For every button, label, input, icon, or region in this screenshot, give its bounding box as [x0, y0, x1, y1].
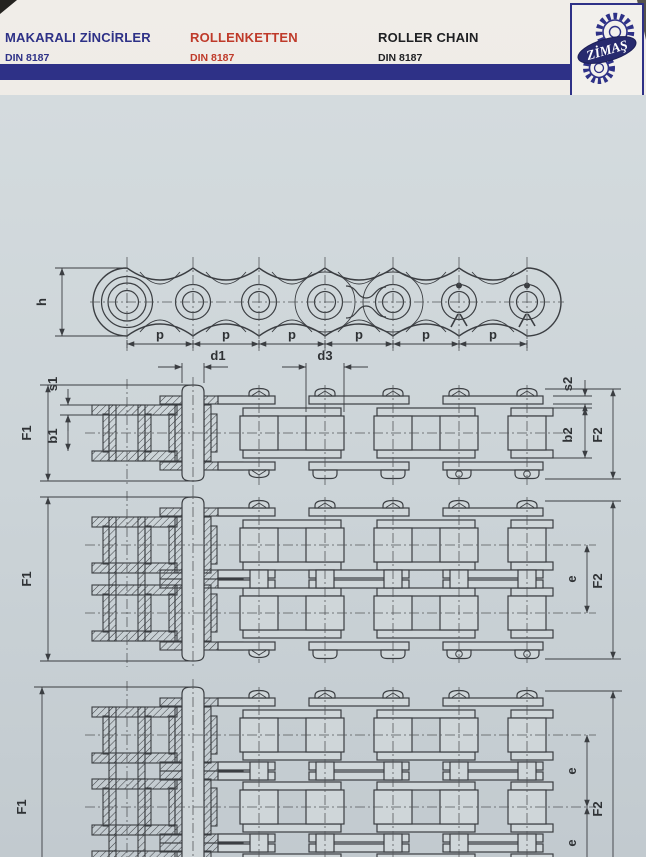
dim-label-f1-triplex: F1 — [14, 799, 29, 814]
title-english-text: ROLLER CHAIN — [378, 31, 479, 44]
dim-label-b2: b2 — [560, 427, 575, 442]
dim-label-e-duplex: e — [564, 575, 579, 582]
dim-label-p: p — [422, 327, 430, 342]
title-turkish: MAKARALI ZİNCİRLER DIN 8187 — [5, 31, 151, 64]
dim-label-p: p — [222, 327, 230, 342]
catalog-page: MAKARALI ZİNCİRLER DIN 8187 ROLLENKETTEN… — [0, 0, 646, 857]
dim-label-f2-duplex: F2 — [590, 573, 605, 588]
zimas-logo: ZİMAŞ — [570, 3, 644, 97]
title-turkish-text: MAKARALI ZİNCİRLER — [5, 31, 151, 44]
title-english: ROLLER CHAIN DIN 8187 — [378, 31, 479, 64]
dim-label-p: p — [288, 327, 296, 342]
dim-label-e2-triplex: e — [564, 839, 579, 846]
title-german-din: DIN 8187 — [190, 53, 298, 64]
dim-label-h: h — [34, 298, 49, 306]
dim-label-d1: d1 — [210, 348, 225, 363]
dim-label-b1: b1 — [45, 428, 60, 443]
dim-label-p: p — [489, 327, 497, 342]
dim-label-f1-simplex: F1 — [19, 425, 34, 440]
dim-label-f2-simplex: F2 — [590, 427, 605, 442]
dim-label-p: p — [355, 327, 363, 342]
dim-label-f1-duplex: F1 — [19, 571, 34, 586]
dim-label-d3: d3 — [317, 348, 332, 363]
title-english-din: DIN 8187 — [378, 53, 479, 64]
dim-label-e1-triplex: e — [564, 767, 579, 774]
page-header: MAKARALI ZİNCİRLER DIN 8187 ROLLENKETTEN… — [0, 0, 646, 95]
header-rule-bar — [0, 64, 572, 80]
zimas-logo-art: ZİMAŞ — [572, 5, 642, 95]
chain-drawing: .ln{fill:none;stroke:#3b3e42;stroke-widt… — [0, 95, 646, 857]
dim-label-p: p — [156, 327, 164, 342]
dim-label-f2-triplex: F2 — [590, 801, 605, 816]
title-german-text: ROLLENKETTEN — [190, 31, 298, 44]
title-turkish-din: DIN 8187 — [5, 53, 151, 64]
dim-label-s1: s1 — [45, 377, 60, 391]
title-german: ROLLENKETTEN DIN 8187 — [190, 31, 298, 64]
